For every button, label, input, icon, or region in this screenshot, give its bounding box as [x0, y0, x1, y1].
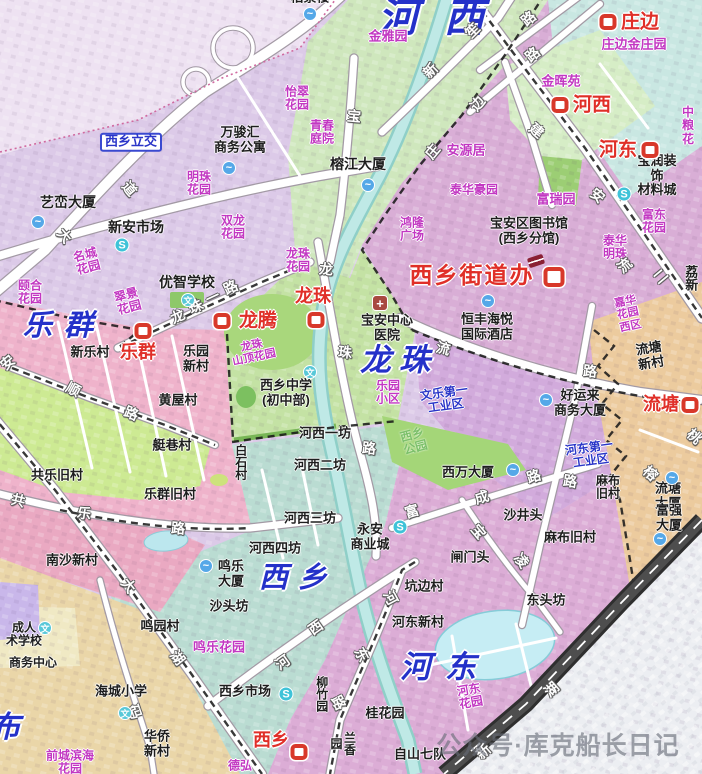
map-label-明珠花园: 明珠 花园	[187, 171, 211, 198]
map-label-东头坊: 东头坊	[526, 594, 565, 609]
map-label-安: 安	[587, 185, 608, 206]
map-label-珠: 珠	[186, 297, 205, 317]
map-label-德弘: 德弘	[228, 759, 252, 772]
school-icon: 文	[181, 293, 195, 307]
water-icon: ~	[222, 161, 236, 175]
map-label-河: 河	[380, 588, 400, 608]
hospital-icon: +	[372, 295, 388, 311]
market-icon: S	[279, 687, 294, 702]
map-label-好运来商务大厦: 好运来 商务大厦	[554, 388, 606, 417]
label-xixiang-interchange: 西乡立交	[100, 133, 162, 152]
map-label-金雅园: 金雅园	[368, 30, 407, 45]
map-label-路: 路	[221, 278, 240, 298]
map-label-流塘: 流塘	[643, 394, 679, 414]
map-label-优智学校: 优智学校	[159, 275, 215, 291]
school-icon: 文	[303, 365, 317, 379]
map-label-新: 新	[421, 61, 442, 82]
map-label-闸门头: 闸门头	[450, 551, 489, 566]
map-label-西: 西	[306, 618, 326, 639]
station-icon	[552, 97, 569, 113]
map-label-码: 码	[124, 703, 144, 722]
map-label-庄: 庄	[422, 142, 443, 163]
map-label-黄屋村: 黄屋村	[158, 394, 197, 409]
water-icon: ~	[361, 178, 375, 192]
map-label-路: 路	[170, 521, 185, 538]
map-label-河: 河	[273, 653, 293, 674]
map-label-建: 建	[526, 120, 547, 141]
station-icon	[642, 142, 659, 158]
map-label-共乐旧村: 共乐旧村	[31, 469, 83, 484]
map-label-榕: 榕	[640, 463, 661, 484]
map-label-南沙新村: 南沙新村	[46, 554, 98, 569]
water-icon: ~	[506, 463, 520, 477]
map-label-富瑞园: 富瑞园	[536, 193, 575, 208]
map-label-龙: 龙	[318, 262, 333, 279]
label-xixiang-jiedaoban: 西乡街道办	[410, 263, 535, 289]
district-bu-partial: 布	[0, 711, 20, 745]
map-label-庄边金庄园: 庄边金庄园	[601, 38, 666, 53]
map-label-成人术学校: 成人 术学校	[6, 622, 42, 649]
map-label-乐: 乐	[76, 505, 92, 522]
map-label-流: 流	[615, 255, 636, 276]
map-label-路: 路	[361, 441, 376, 458]
map-label-乐园新村: 乐园 新村	[183, 344, 209, 373]
map-label-海城小学: 海城小学	[95, 685, 147, 700]
water-icon: ~	[31, 215, 45, 229]
map-label-艇巷村: 艇巷村	[152, 439, 191, 454]
map-label-柳竹园: 柳竹园	[314, 676, 327, 712]
map-label-西万大厦: 西万大厦	[442, 466, 494, 481]
map-label-凌: 凌	[510, 551, 531, 572]
map-label-路: 路	[328, 693, 348, 713]
map-label-安: 安	[0, 352, 18, 373]
map-label-二: 二	[651, 266, 672, 287]
station-icon	[544, 267, 565, 287]
map-label-金晖苑: 金晖苑	[541, 75, 580, 90]
map-label-青春庭院: 青春 庭院	[310, 120, 334, 147]
map-label-路: 路	[562, 473, 578, 490]
map-viewport: 河西乐群龙珠西乡河东布西乡街道办庄边河西河东龙腾乐群龙珠流塘西乡西乡立交怡翠 花…	[0, 0, 702, 774]
map-label-路: 路	[582, 364, 597, 381]
map-label-宝: 宝	[346, 109, 361, 126]
station-icon	[214, 313, 231, 329]
map-label-万骏汇商务公寓: 万骏汇 商务公寓	[214, 125, 266, 154]
market-icon: S	[617, 187, 632, 202]
map-label-湖: 湖	[542, 679, 563, 700]
map-label-乐群旧村: 乐群旧村	[144, 488, 196, 503]
map-label-嘉华花园西区: 嘉华 花园 西区	[613, 294, 642, 335]
map-label-河西三坊: 河西三坊	[284, 512, 336, 527]
map-label-共: 共	[9, 492, 26, 511]
map-label-西乡公园: 西乡 公园	[399, 426, 429, 458]
station-icon	[291, 744, 308, 760]
map-label-河西一坊: 河西一坊	[299, 427, 351, 442]
map-label-河西二坊: 河西二坊	[294, 459, 346, 474]
map-label-沙头坊: 沙头坊	[209, 600, 248, 615]
map-label-柏景楼: 柏景楼	[290, 0, 329, 5]
map-label-西乡中学(初中部): 西乡中学 (初中部)	[260, 378, 312, 407]
map-label-珠: 珠	[337, 345, 352, 362]
map-label-富东花园: 富东 花园	[642, 209, 666, 236]
school-icon: 文	[38, 621, 52, 635]
map-label-流塘大厦: 流塘大厦	[651, 481, 685, 510]
watermark: 公众号·库克船长日记	[436, 726, 679, 762]
map-label-安源居: 安源居	[446, 144, 485, 159]
map-label-龙珠: 龙珠	[295, 286, 331, 306]
map-label-翠景花园: 翠景 花园	[113, 286, 143, 318]
map-label-宝安中心医院: 宝安中心 医院	[361, 313, 413, 342]
map-label-白石村: 白石村	[233, 444, 246, 480]
map-label-鸣乐花园: 鸣乐花园	[193, 641, 245, 656]
map-label-商务中心: 商务中心	[9, 656, 57, 669]
map-label-路: 路	[122, 404, 141, 424]
water-icon: ~	[481, 294, 495, 308]
station-icon	[600, 14, 617, 30]
station-icon	[135, 323, 152, 339]
map-label-东: 东	[351, 645, 371, 665]
map-label-龙: 龙	[168, 307, 187, 327]
map-label-河东: 河东	[599, 139, 637, 160]
map-label-庄边: 庄边	[621, 11, 659, 32]
map-label-兰香园: 兰香园	[329, 728, 356, 759]
map-label-麻布旧村: 麻布 旧村	[596, 475, 620, 502]
map-label-前城滨海花园: 前城滨海 花园	[46, 750, 94, 774]
map-label-宝润装饰材料城: 宝润装饰 材料城	[635, 154, 680, 198]
station-icon	[682, 397, 699, 413]
map-label-永安商业城: 永安 商业城	[350, 522, 389, 551]
map-label-流: 流	[434, 340, 452, 359]
district-xixiang: 西乡	[259, 562, 337, 594]
map-label-华侨新村: 华侨 新村	[144, 729, 170, 758]
map-label-艺峦大厦: 艺峦大厦	[40, 195, 96, 211]
map-label-大: 大	[53, 226, 74, 247]
map-label-沙井头: 沙井头	[503, 509, 542, 524]
map-label-路: 路	[523, 44, 544, 65]
map-label-名城花园: 名城 花园	[72, 246, 102, 278]
district-lequn: 乐群	[23, 310, 105, 342]
map-label-河东新村: 河东新村	[392, 616, 444, 631]
water-icon: ~	[539, 393, 553, 407]
water-icon: ~	[199, 559, 213, 573]
map-label-龙腾: 龙腾	[239, 310, 277, 331]
map-label-泰华豪园: 泰华豪园	[450, 183, 498, 196]
map-label-湖: 湖	[167, 648, 188, 669]
market-icon: S	[393, 520, 408, 535]
map-label-荔新: 荔新	[683, 265, 698, 291]
map-labels-layer: 河西乐群龙珠西乡河东布西乡街道办庄边河西河东龙腾乐群龙珠流塘西乡西乡立交怡翠 花…	[0, 0, 702, 774]
map-label-成: 成	[473, 488, 491, 507]
market-icon: S	[115, 238, 130, 253]
map-label-桂花园: 桂花园	[365, 707, 404, 722]
map-label-大: 大	[118, 576, 139, 597]
map-label-颐合花园: 颐合 花园	[18, 280, 42, 307]
map-label-河西: 河西	[573, 94, 611, 115]
district-longzhu: 龙珠	[360, 344, 438, 379]
map-label-富: 富	[403, 502, 421, 521]
map-label-麻布旧村: 麻布旧村	[544, 531, 596, 546]
map-label-西乡市场: 西乡市场	[219, 685, 271, 700]
map-label-边: 边	[467, 94, 488, 115]
water-icon: ~	[303, 7, 317, 21]
map-label-新安市场: 新安市场	[108, 220, 164, 236]
book-icon	[527, 254, 545, 268]
map-label-路: 路	[525, 467, 543, 486]
map-label-顺: 顺	[63, 380, 83, 400]
water-icon: ~	[665, 471, 679, 485]
map-label-一: 一	[203, 288, 222, 308]
district-hexi: 河西	[378, 0, 510, 41]
map-label-文乐第一工业区: 文乐第一 工业区	[419, 383, 470, 416]
map-label-宝: 宝	[467, 522, 488, 543]
map-label-桃: 桃	[684, 426, 702, 447]
map-label-鸣园村: 鸣园村	[140, 620, 179, 635]
water-icon: ~	[653, 532, 667, 546]
map-label-鸣乐大厦: 鸣乐 大厦	[218, 559, 244, 588]
map-label-乐群: 乐群	[120, 342, 156, 362]
map-label-河东第一工业区: 河东第一 工业区	[564, 438, 615, 471]
map-label-中粮花: 中粮 花	[681, 106, 695, 146]
map-label-恒丰海悦国际酒店: 恒丰海悦 国际酒店	[461, 312, 513, 341]
map-label-龙珠山顶花园: 龙珠 山顶花园	[229, 335, 277, 368]
station-icon	[308, 312, 325, 328]
map-label-怡翠花园: 怡翠 花园	[285, 86, 309, 113]
map-label-新乐村: 新乐村	[70, 346, 109, 361]
map-label-笙: 笙	[463, 21, 484, 42]
map-label-道: 道	[118, 179, 139, 200]
school-icon: 文	[118, 706, 132, 720]
map-label-榕江大厦: 榕江大厦	[330, 157, 386, 173]
map-label-坑边村: 坑边村	[404, 580, 443, 595]
map-label-河西四坊: 河西四坊	[249, 542, 301, 557]
map-label-路: 路	[519, 8, 540, 29]
map-label-流塘新村: 流塘 新村	[635, 339, 666, 372]
map-label-宝安区图书馆(西乡分馆): 宝安区图书馆 (西乡分馆)	[490, 216, 568, 245]
map-label-富强大厦: 富强大厦	[653, 503, 686, 532]
map-label-龙珠花园: 龙珠 花园	[286, 248, 310, 275]
map-label-双龙花园: 双龙 花园	[221, 215, 245, 242]
map-label-鸿隆广场: 鸿隆 广场	[400, 217, 424, 244]
map-label-泰华明珠: 泰华 明珠	[603, 235, 627, 262]
map-label-乐园小区: 乐园 小区	[376, 380, 400, 407]
map-label-西乡: 西乡	[253, 730, 289, 750]
district-hedong: 河东	[400, 651, 490, 686]
map-label-河东花园: 河东 花园	[456, 682, 484, 713]
